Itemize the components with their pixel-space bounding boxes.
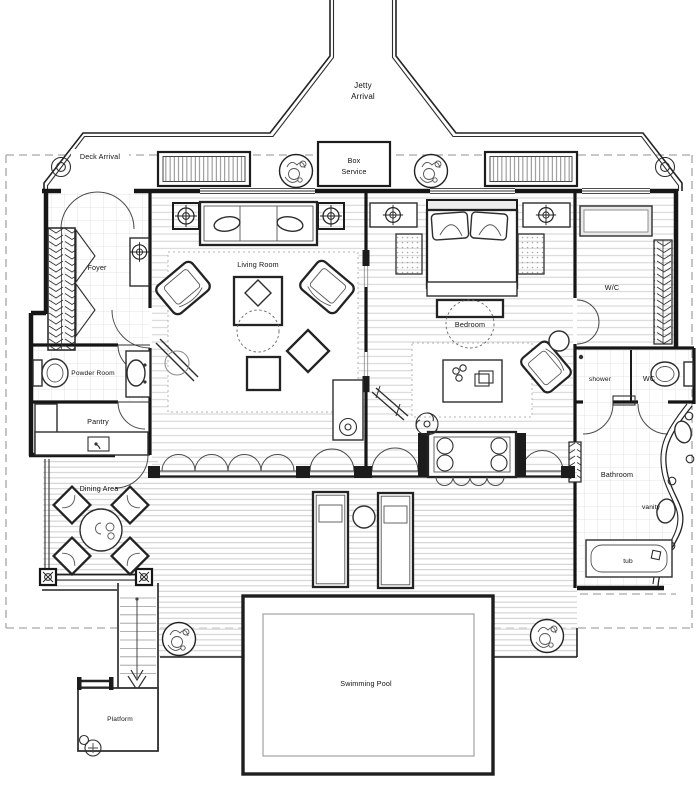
nightstand [518,234,544,274]
nightstand [396,234,422,274]
floor-plan-canvas: Swimming Pool Box Service [0,0,698,800]
dining-area-label: Dining Area [80,484,119,493]
sink-icon [126,351,150,397]
vanity-sink-icon [672,419,693,444]
deck-arrival-label: Deck Arrival [80,152,120,161]
powder-room-label: Powder Room [71,370,115,377]
tree-icon [163,623,196,656]
stairs-direction-arrow [128,597,146,690]
box-service: Box Service [318,142,390,186]
toilet-icon [651,362,693,386]
foyer-label: Foyer [87,263,107,272]
room-wc [651,362,693,386]
tub-label: tub [623,558,633,565]
lounger-side-table [353,506,375,528]
bedroom-label: Bedroom [455,320,485,329]
box-service-label-2: Service [341,167,366,176]
swimming-pool: Swimming Pool [243,596,493,774]
shower-head-icon [579,355,583,359]
tree-icon [531,620,564,653]
side-table [549,331,569,351]
platform-label: Platform [107,716,133,723]
side-table [247,357,280,390]
planter-left [158,152,250,186]
box-service-label-1: Box [348,156,361,165]
sofa [200,202,317,245]
tree-icon [415,155,448,188]
living-room-label: Living Room [237,260,279,269]
bathroom-label: Bathroom [601,470,633,479]
swimming-pool-label: Swimming Pool [340,679,392,688]
tv-cabinet [333,380,363,440]
pantry-label: Pantry [87,417,109,426]
bed [427,200,517,317]
tree-icon [280,155,313,188]
foyer-console [130,238,150,286]
jetty-arrival-label-2: Arrival [351,92,375,101]
vanity-label: vanity [642,504,661,511]
jetty-arrival-label-1: Jetty [354,81,372,90]
bedroom-table [443,360,502,402]
dining-table [80,509,122,551]
wc-label: WC [643,374,655,383]
bed-bench [437,300,503,317]
daybed [418,432,526,486]
toilet-icon [33,359,68,387]
floor-plan-svg: Swimming Pool Box Service [0,0,698,800]
wic-label: W/C [605,283,619,292]
planter-right [485,152,577,186]
sun-lounger [378,493,413,588]
sun-lounger [313,492,348,587]
room-pantry [35,404,148,455]
shower-label: shower [589,376,612,383]
